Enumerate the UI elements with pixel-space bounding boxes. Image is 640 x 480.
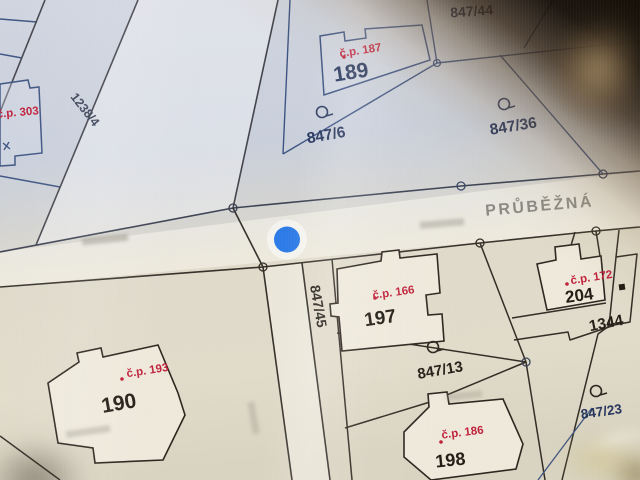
definition-dot xyxy=(120,377,124,381)
reflection-blob xyxy=(608,450,640,480)
photo-shadow-bottom-left xyxy=(0,420,110,480)
photographed-screen: PRŮBĚŽNÁ 1238/4 847/44 189 847/6 847/36 … xyxy=(0,0,640,480)
parcel-label-197: 197 xyxy=(363,306,397,331)
definition-dot xyxy=(565,282,569,286)
parcel-label-847-44: 847/44 xyxy=(450,2,494,21)
location-marker[interactable] xyxy=(267,220,307,260)
definition-dot xyxy=(342,55,346,59)
definition-dot xyxy=(439,440,443,444)
building-symbol-square xyxy=(619,284,626,291)
parcel-label-204: 204 xyxy=(564,284,595,307)
definition-dot xyxy=(373,296,377,300)
building-303 xyxy=(0,80,42,166)
parcel-label-198: 198 xyxy=(434,449,466,472)
location-marker-dot[interactable] xyxy=(274,227,300,253)
